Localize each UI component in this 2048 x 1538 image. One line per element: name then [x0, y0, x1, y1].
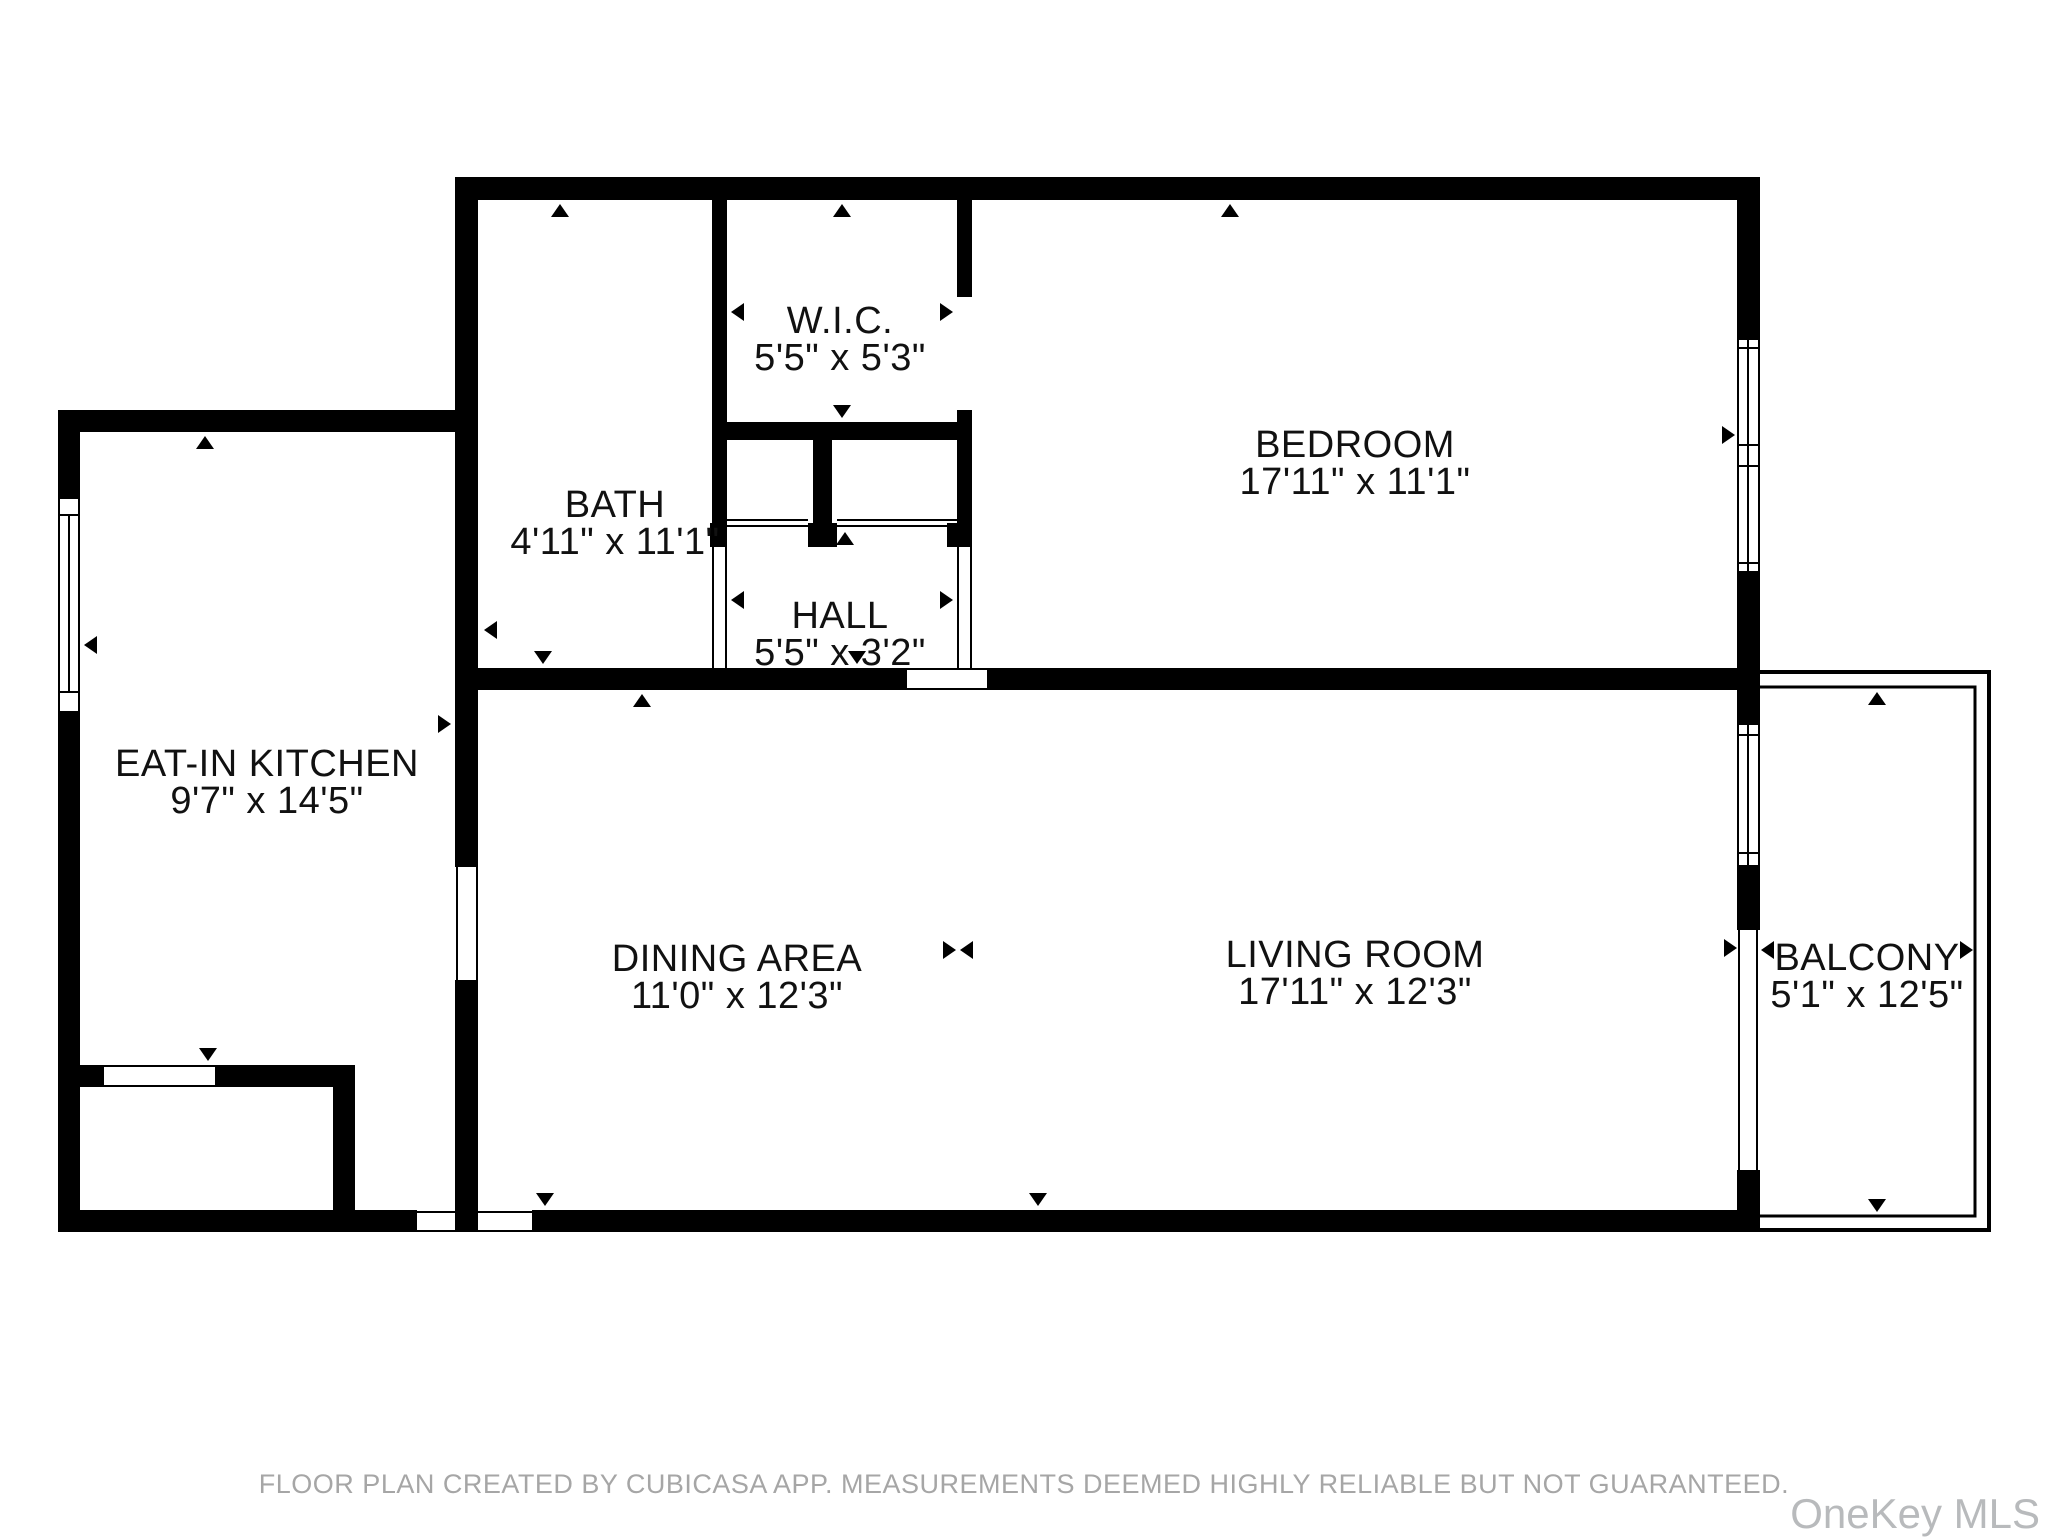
bedroom-doorway [958, 547, 971, 668]
marker-balcony-door-living-side [1724, 939, 1737, 957]
room-name: BALCONY [1770, 940, 1963, 977]
room-name: HALL [754, 598, 926, 635]
wall-top [455, 177, 1760, 200]
room-name: BATH [510, 487, 719, 524]
wall-kitchen-left-upper [58, 410, 80, 497]
bath-doorway [713, 547, 726, 668]
watermark-onekey-mls: OneKey MLS [1790, 1490, 2040, 1538]
footer-disclaimer: FLOOR PLAN CREATED BY CUBICASA APP. MEAS… [0, 1469, 2048, 1500]
wall-bottom-left [58, 1210, 417, 1232]
marker-dining-top [633, 694, 651, 707]
marker-dining-living-divider-a [943, 941, 956, 959]
kitchen-dining-doorway [457, 867, 477, 980]
wall-west-upper [455, 177, 478, 867]
bedroom-window [1737, 339, 1760, 572]
marker-bedroom-window [1722, 426, 1735, 444]
marker-balcony-top [1868, 692, 1886, 705]
room-name: DINING AREA [612, 941, 862, 978]
marker-kitchen-left [84, 636, 97, 654]
wall-kitchen-bottom-stub [80, 1065, 104, 1087]
wall-kitchen-top [58, 410, 478, 432]
room-dimensions: 17'11" x 12'3" [1226, 974, 1485, 1011]
marker-bath-left [484, 621, 497, 639]
balcony-sliding-door [1739, 930, 1757, 1170]
marker-kitchen-closet-door [199, 1048, 217, 1061]
room-label-hall: HALL 5'5" x 3'2" [754, 598, 926, 672]
marker-kitchen-top [196, 436, 214, 449]
room-dimensions: 11'0" x 12'3" [612, 978, 862, 1015]
direction-markers [84, 204, 1973, 1212]
marker-bath-top [551, 204, 569, 217]
wall-bottom-right [532, 1210, 1760, 1232]
wall-wic-bottom [712, 422, 972, 440]
marker-balcony-bottom [1868, 1199, 1886, 1212]
marker-wic-top [833, 204, 851, 217]
wall-closet-right [333, 1065, 355, 1232]
room-label-bedroom: BEDROOM 17'11" x 11'1" [1240, 427, 1471, 501]
marker-wic-door-left [731, 303, 744, 321]
marker-entry-door [536, 1193, 554, 1206]
room-label-wic: W.I.C. 5'5" x 5'3" [754, 303, 926, 377]
hall-closet-thresholds [727, 520, 957, 526]
wall-right-bedroom-upper [1737, 200, 1760, 338]
wall-west-lower [455, 980, 478, 1232]
kitchen-window [58, 498, 80, 712]
marker-dining-living-divider-b [960, 941, 973, 959]
room-dimensions: 5'5" x 3'2" [754, 635, 926, 672]
room-dimensions: 5'5" x 5'3" [754, 340, 926, 377]
wall-hall-divider-foot [808, 523, 837, 547]
wall-right-living [1737, 867, 1760, 930]
marker-wic-bottom [833, 405, 851, 418]
room-dimensions: 4'11" x 11'1" [510, 524, 719, 561]
room-dimensions: 9'7" x 14'5" [115, 783, 419, 820]
room-label-balcony: BALCONY 5'1" x 12'5" [1770, 940, 1963, 1014]
floor-plan: W.I.C. 5'5" x 5'3" BATH 4'11" x 11'1" HA… [0, 0, 2048, 1536]
wall-wic-right-upper [957, 200, 972, 297]
room-name: LIVING ROOM [1226, 937, 1485, 974]
marker-hall-right [940, 591, 953, 609]
room-name: BEDROOM [1240, 427, 1471, 464]
marker-kitchen-right [438, 715, 451, 733]
wall-wic-right-lower [957, 410, 972, 523]
room-label-living-room: LIVING ROOM 17'11" x 12'3" [1226, 937, 1485, 1011]
room-dimensions: 5'1" x 12'5" [1770, 977, 1963, 1014]
marker-living-bottom [1029, 1193, 1047, 1206]
marker-hall-top [836, 532, 854, 545]
marker-bath-bottom [534, 651, 552, 664]
wall-right-mid [1737, 573, 1760, 723]
living-room-window [1737, 724, 1760, 866]
kitchen-closet-doorway [104, 1066, 215, 1086]
marker-bedroom-top [1221, 204, 1239, 217]
room-label-eat-in-kitchen: EAT-IN KITCHEN 9'7" x 14'5" [115, 746, 419, 820]
room-name: EAT-IN KITCHEN [115, 746, 419, 783]
marker-wic-door-right [940, 303, 953, 321]
room-label-dining-area: DINING AREA 11'0" x 12'3" [612, 941, 862, 1015]
room-dimensions: 17'11" x 11'1" [1240, 464, 1471, 501]
wall-hall-divider [813, 440, 832, 523]
marker-hall-left [731, 591, 744, 609]
room-label-bath: BATH 4'11" x 11'1" [510, 487, 719, 561]
room-name: W.I.C. [754, 303, 926, 340]
wall-divider-right [987, 668, 1737, 690]
wall-kitchen-left-lower [58, 713, 80, 1232]
